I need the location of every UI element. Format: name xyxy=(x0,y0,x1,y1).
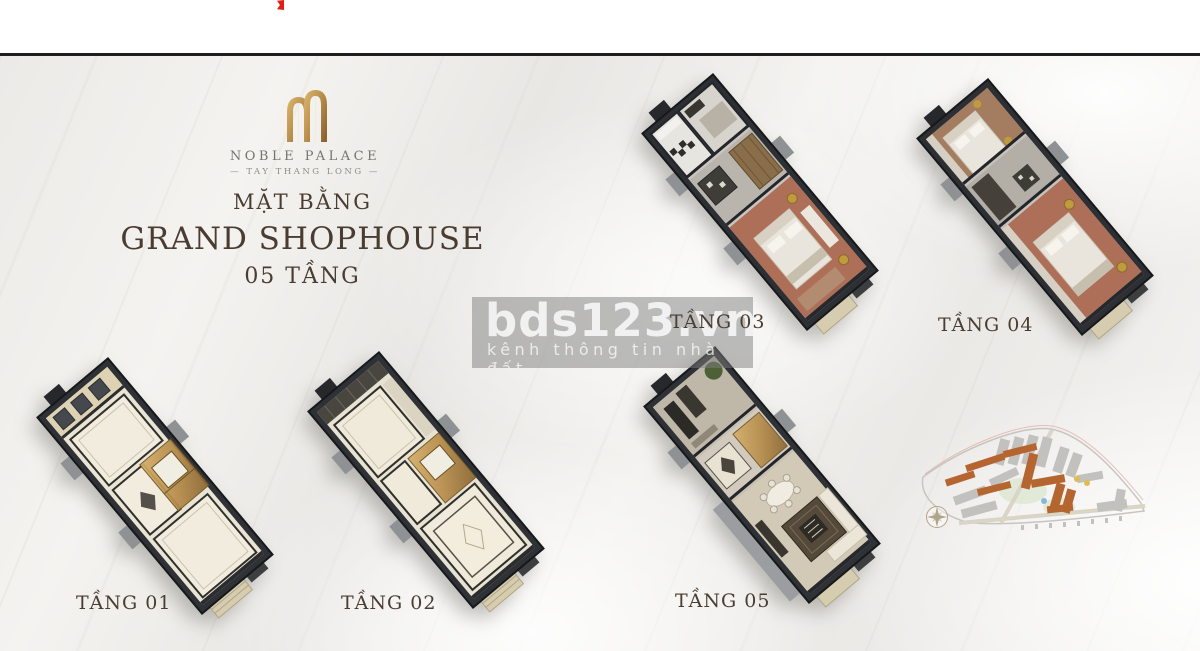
brand-tagline: — TAY THANG LONG — xyxy=(212,167,398,177)
brand-block: NOBLE PALACE — TAY THANG LONG — xyxy=(212,90,398,177)
page-title: MẶT BẰNG GRAND SHOPHOUSE 05 TẦNG xyxy=(110,190,495,289)
floor-label-tang-04: TẦNG 04 xyxy=(938,314,1033,336)
floor-label-tang-03: TẦNG 03 xyxy=(670,311,765,333)
floor-plan-tang-02-render xyxy=(296,342,556,614)
floor-label-tang-01: TẦNG 01 xyxy=(76,592,171,614)
floor-plan-tang-04-render xyxy=(905,69,1165,341)
title-floor-count: 05 TẦNG xyxy=(110,264,495,289)
floor-plan-tang-05-render xyxy=(632,337,892,609)
title-main: GRAND SHOPHOUSE xyxy=(110,221,495,257)
floor-label-tang-05: TẦNG 05 xyxy=(675,590,770,612)
title-subtitle: MẶT BẰNG xyxy=(110,190,495,214)
noble-palace-monogram-icon xyxy=(282,90,328,142)
compass-rose-icon xyxy=(927,507,948,528)
poster-canvas: NOBLE PALACE — TAY THANG LONG — MẶT BẰNG… xyxy=(0,0,1200,651)
watermark-tagline: kênh thông tin nhà đất xyxy=(472,340,753,368)
master-plan-map xyxy=(901,413,1153,563)
red-bookmark-icon xyxy=(277,0,284,10)
floor-plan-tang-03-render xyxy=(630,64,890,336)
brand-name: NOBLE PALACE xyxy=(212,149,398,164)
floor-plan-tang-01-render xyxy=(25,348,285,620)
floor-label-tang-02: TẦNG 02 xyxy=(341,592,436,614)
